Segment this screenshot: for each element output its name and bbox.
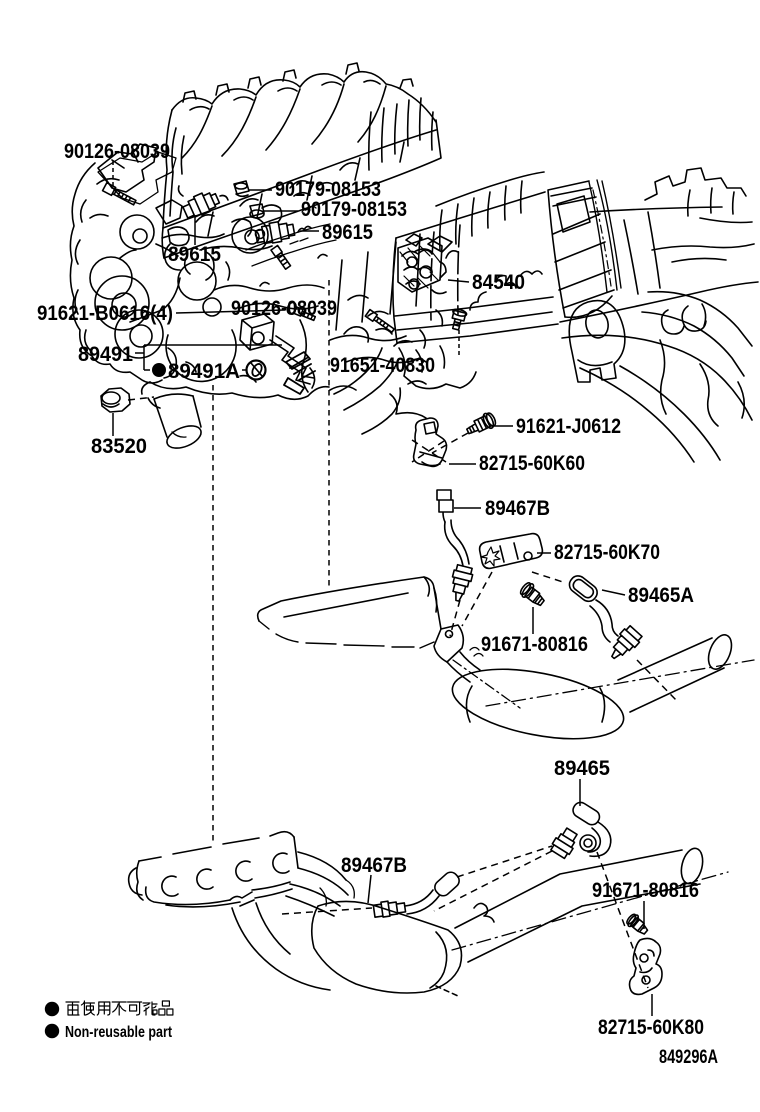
svg-text:82715-60K60: 82715-60K60 bbox=[479, 452, 585, 475]
svg-text:89465: 89465 bbox=[554, 757, 610, 780]
svg-text:84540: 84540 bbox=[472, 271, 525, 294]
svg-text:91621-J0612: 91621-J0612 bbox=[516, 415, 621, 438]
svg-text:83520: 83520 bbox=[91, 435, 147, 458]
svg-text:82715-60K80: 82715-60K80 bbox=[598, 1016, 704, 1039]
svg-text:91671-80816: 91671-80816 bbox=[481, 633, 588, 656]
svg-text:82715-60K70: 82715-60K70 bbox=[554, 541, 660, 564]
svg-text:89467B: 89467B bbox=[341, 854, 407, 877]
svg-text:89491A: 89491A bbox=[168, 360, 240, 383]
svg-text:90126-08039: 90126-08039 bbox=[231, 297, 337, 320]
svg-text:91671-80816: 91671-80816 bbox=[592, 879, 699, 902]
svg-text:Non-reusable part: Non-reusable part bbox=[65, 1024, 173, 1041]
svg-text:89467B: 89467B bbox=[485, 497, 550, 520]
svg-text:849296A: 849296A bbox=[659, 1047, 718, 1068]
svg-text:89465A: 89465A bbox=[628, 584, 694, 607]
svg-text:91651-40830: 91651-40830 bbox=[330, 354, 435, 377]
svg-text:90179-08153: 90179-08153 bbox=[301, 198, 407, 221]
